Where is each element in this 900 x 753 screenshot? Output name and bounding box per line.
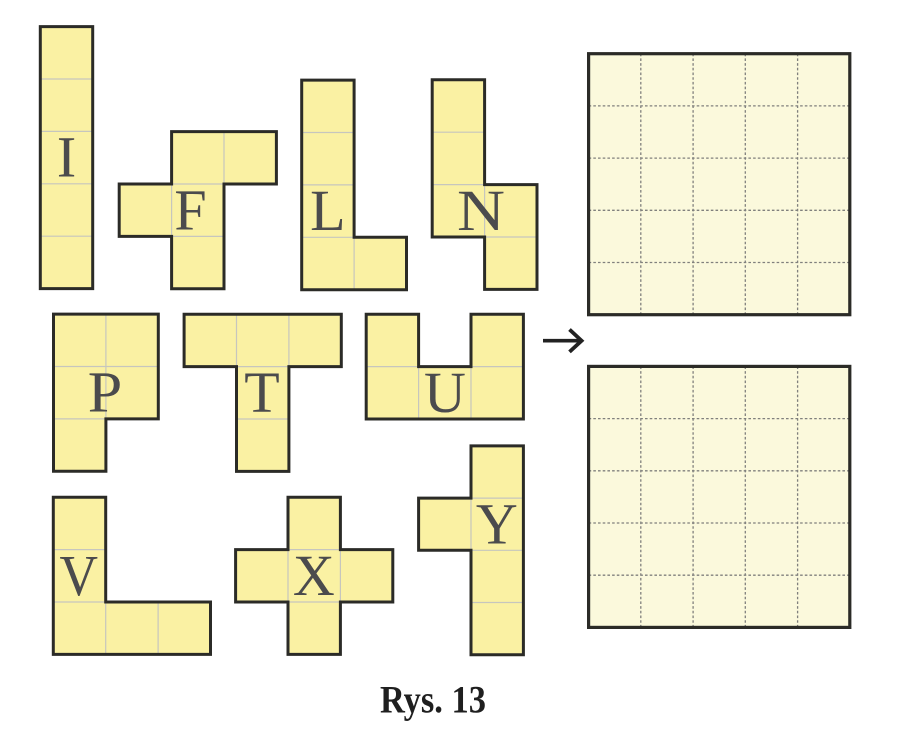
svg-text:Rys. 13: Rys. 13: [380, 679, 486, 722]
svg-text:Y: Y: [476, 491, 518, 556]
svg-text:T: T: [244, 360, 279, 425]
svg-text:N: N: [457, 178, 505, 243]
svg-text:P: P: [88, 360, 123, 425]
svg-text:V: V: [60, 543, 99, 608]
svg-text:L: L: [310, 178, 345, 243]
svg-text:I: I: [57, 125, 76, 190]
svg-text:U: U: [424, 360, 466, 425]
svg-text:F: F: [174, 177, 206, 242]
svg-text:X: X: [293, 543, 335, 608]
